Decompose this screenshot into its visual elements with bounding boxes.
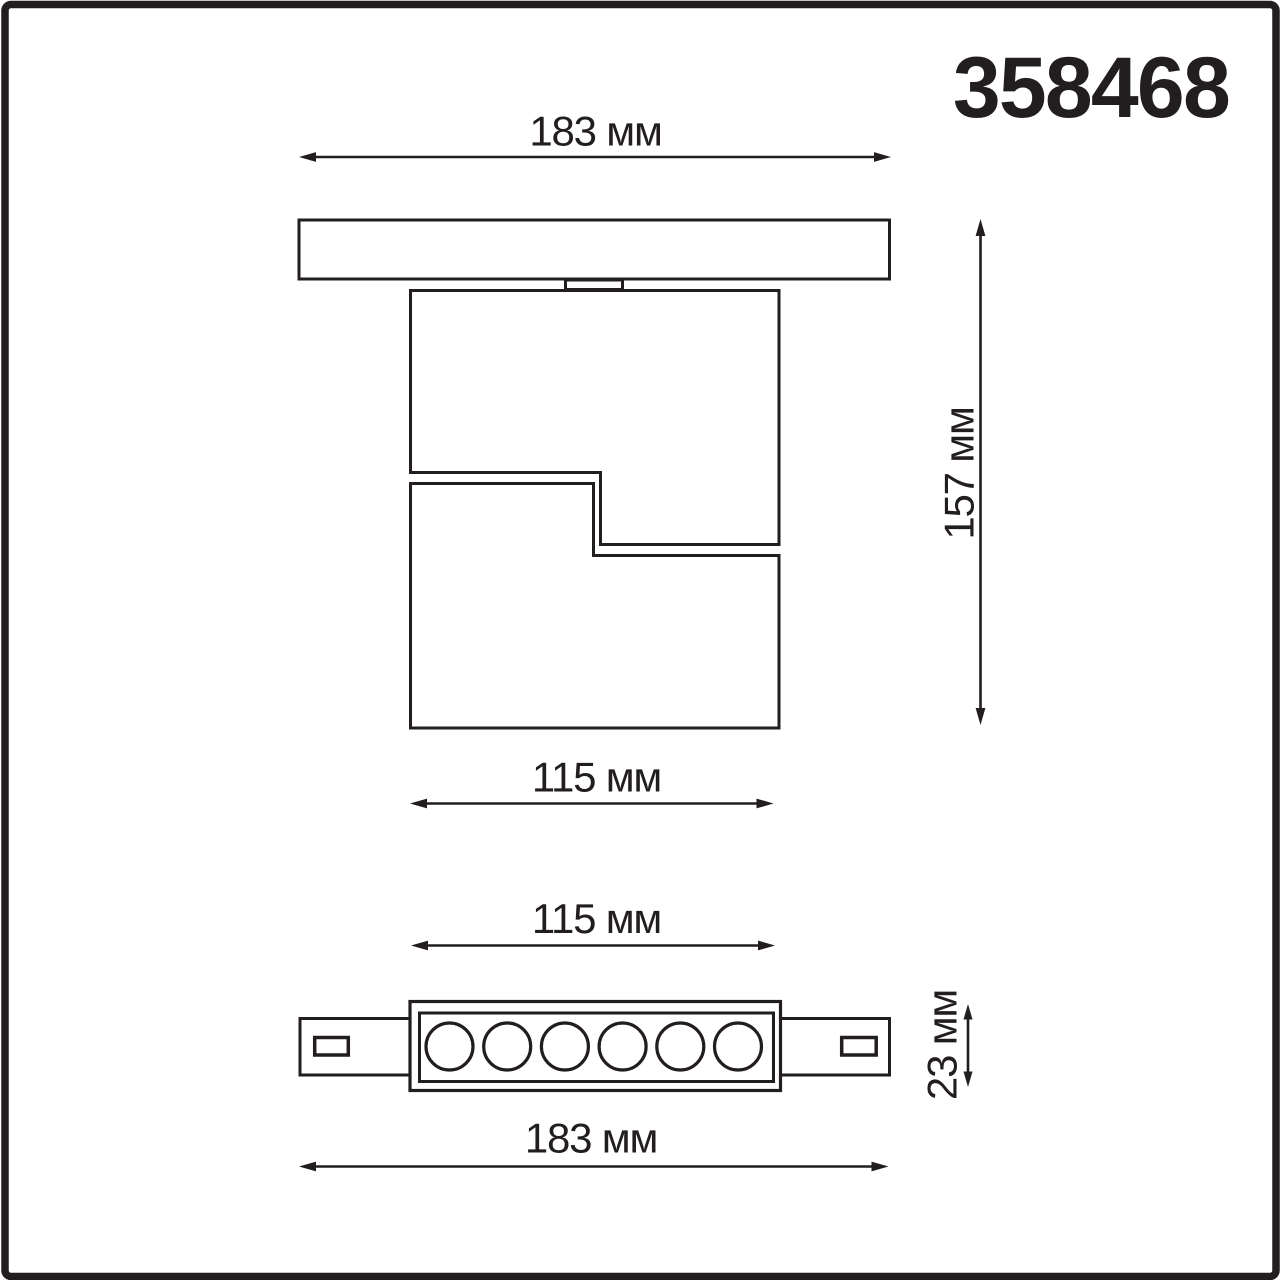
- svg-text:183 мм: 183 мм: [529, 108, 661, 155]
- svg-text:115 мм: 115 мм: [532, 754, 661, 801]
- svg-text:23 мм: 23 мм: [919, 990, 966, 1100]
- svg-text:115 мм: 115 мм: [532, 895, 661, 942]
- svg-text:183 мм: 183 мм: [525, 1115, 657, 1162]
- svg-text:358468: 358468: [953, 40, 1229, 136]
- svg-text:157 мм: 157 мм: [936, 407, 983, 539]
